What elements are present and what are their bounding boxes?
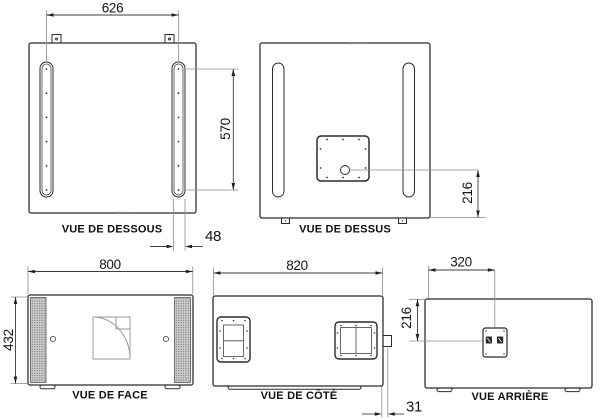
caption-view-top: VUE DE DESSUS	[299, 224, 391, 236]
grille-right	[175, 298, 191, 383]
dim-front-height: 432	[1, 297, 27, 384]
dim-front-width: 800	[28, 257, 193, 294]
dim-front-height-value: 432	[1, 329, 16, 351]
screw-icon	[163, 336, 168, 341]
dim-rail-width-value: 48	[205, 228, 221, 245]
caption-view-side: VUE DE CÔTÉ	[261, 389, 338, 402]
view-rear	[425, 299, 592, 392]
grille-left	[31, 298, 47, 383]
dim-panel-offset-y-value: 216	[399, 307, 414, 329]
technical-drawing: 626 570 48	[0, 0, 600, 420]
dim-side-depth: 820	[214, 258, 383, 295]
dim-front-width-value: 800	[99, 257, 121, 272]
handle-left	[217, 317, 250, 362]
caption-view-front: VUE DE FACE	[72, 390, 148, 402]
dim-rail-spacing-value: 626	[102, 1, 124, 16]
connector-panel	[483, 328, 507, 357]
view-bottom	[29, 35, 196, 214]
dim-rail-length-value: 570	[218, 118, 233, 140]
drawing-sheet: 626 570 48	[0, 0, 600, 420]
view-side	[213, 296, 392, 389]
caption-view-rear: VUE ARRIÈRE	[472, 390, 549, 403]
screw-icon	[50, 336, 55, 341]
mounting-tab-icon	[52, 35, 174, 44]
view-top	[260, 43, 430, 224]
dim-side-depth-value: 820	[286, 258, 308, 273]
view-front	[28, 295, 193, 389]
rail-runner-tab	[383, 336, 392, 347]
skid-rail	[228, 386, 361, 389]
access-panel	[317, 136, 369, 181]
dim-hole-offset-value: 216	[460, 182, 475, 204]
caption-view-bottom: VUE DE DESSOUS	[62, 224, 163, 236]
handle-right	[335, 322, 377, 359]
dim-runner-offset-value: 31	[406, 399, 422, 416]
dim-panel-offset-x-value: 320	[450, 255, 472, 270]
